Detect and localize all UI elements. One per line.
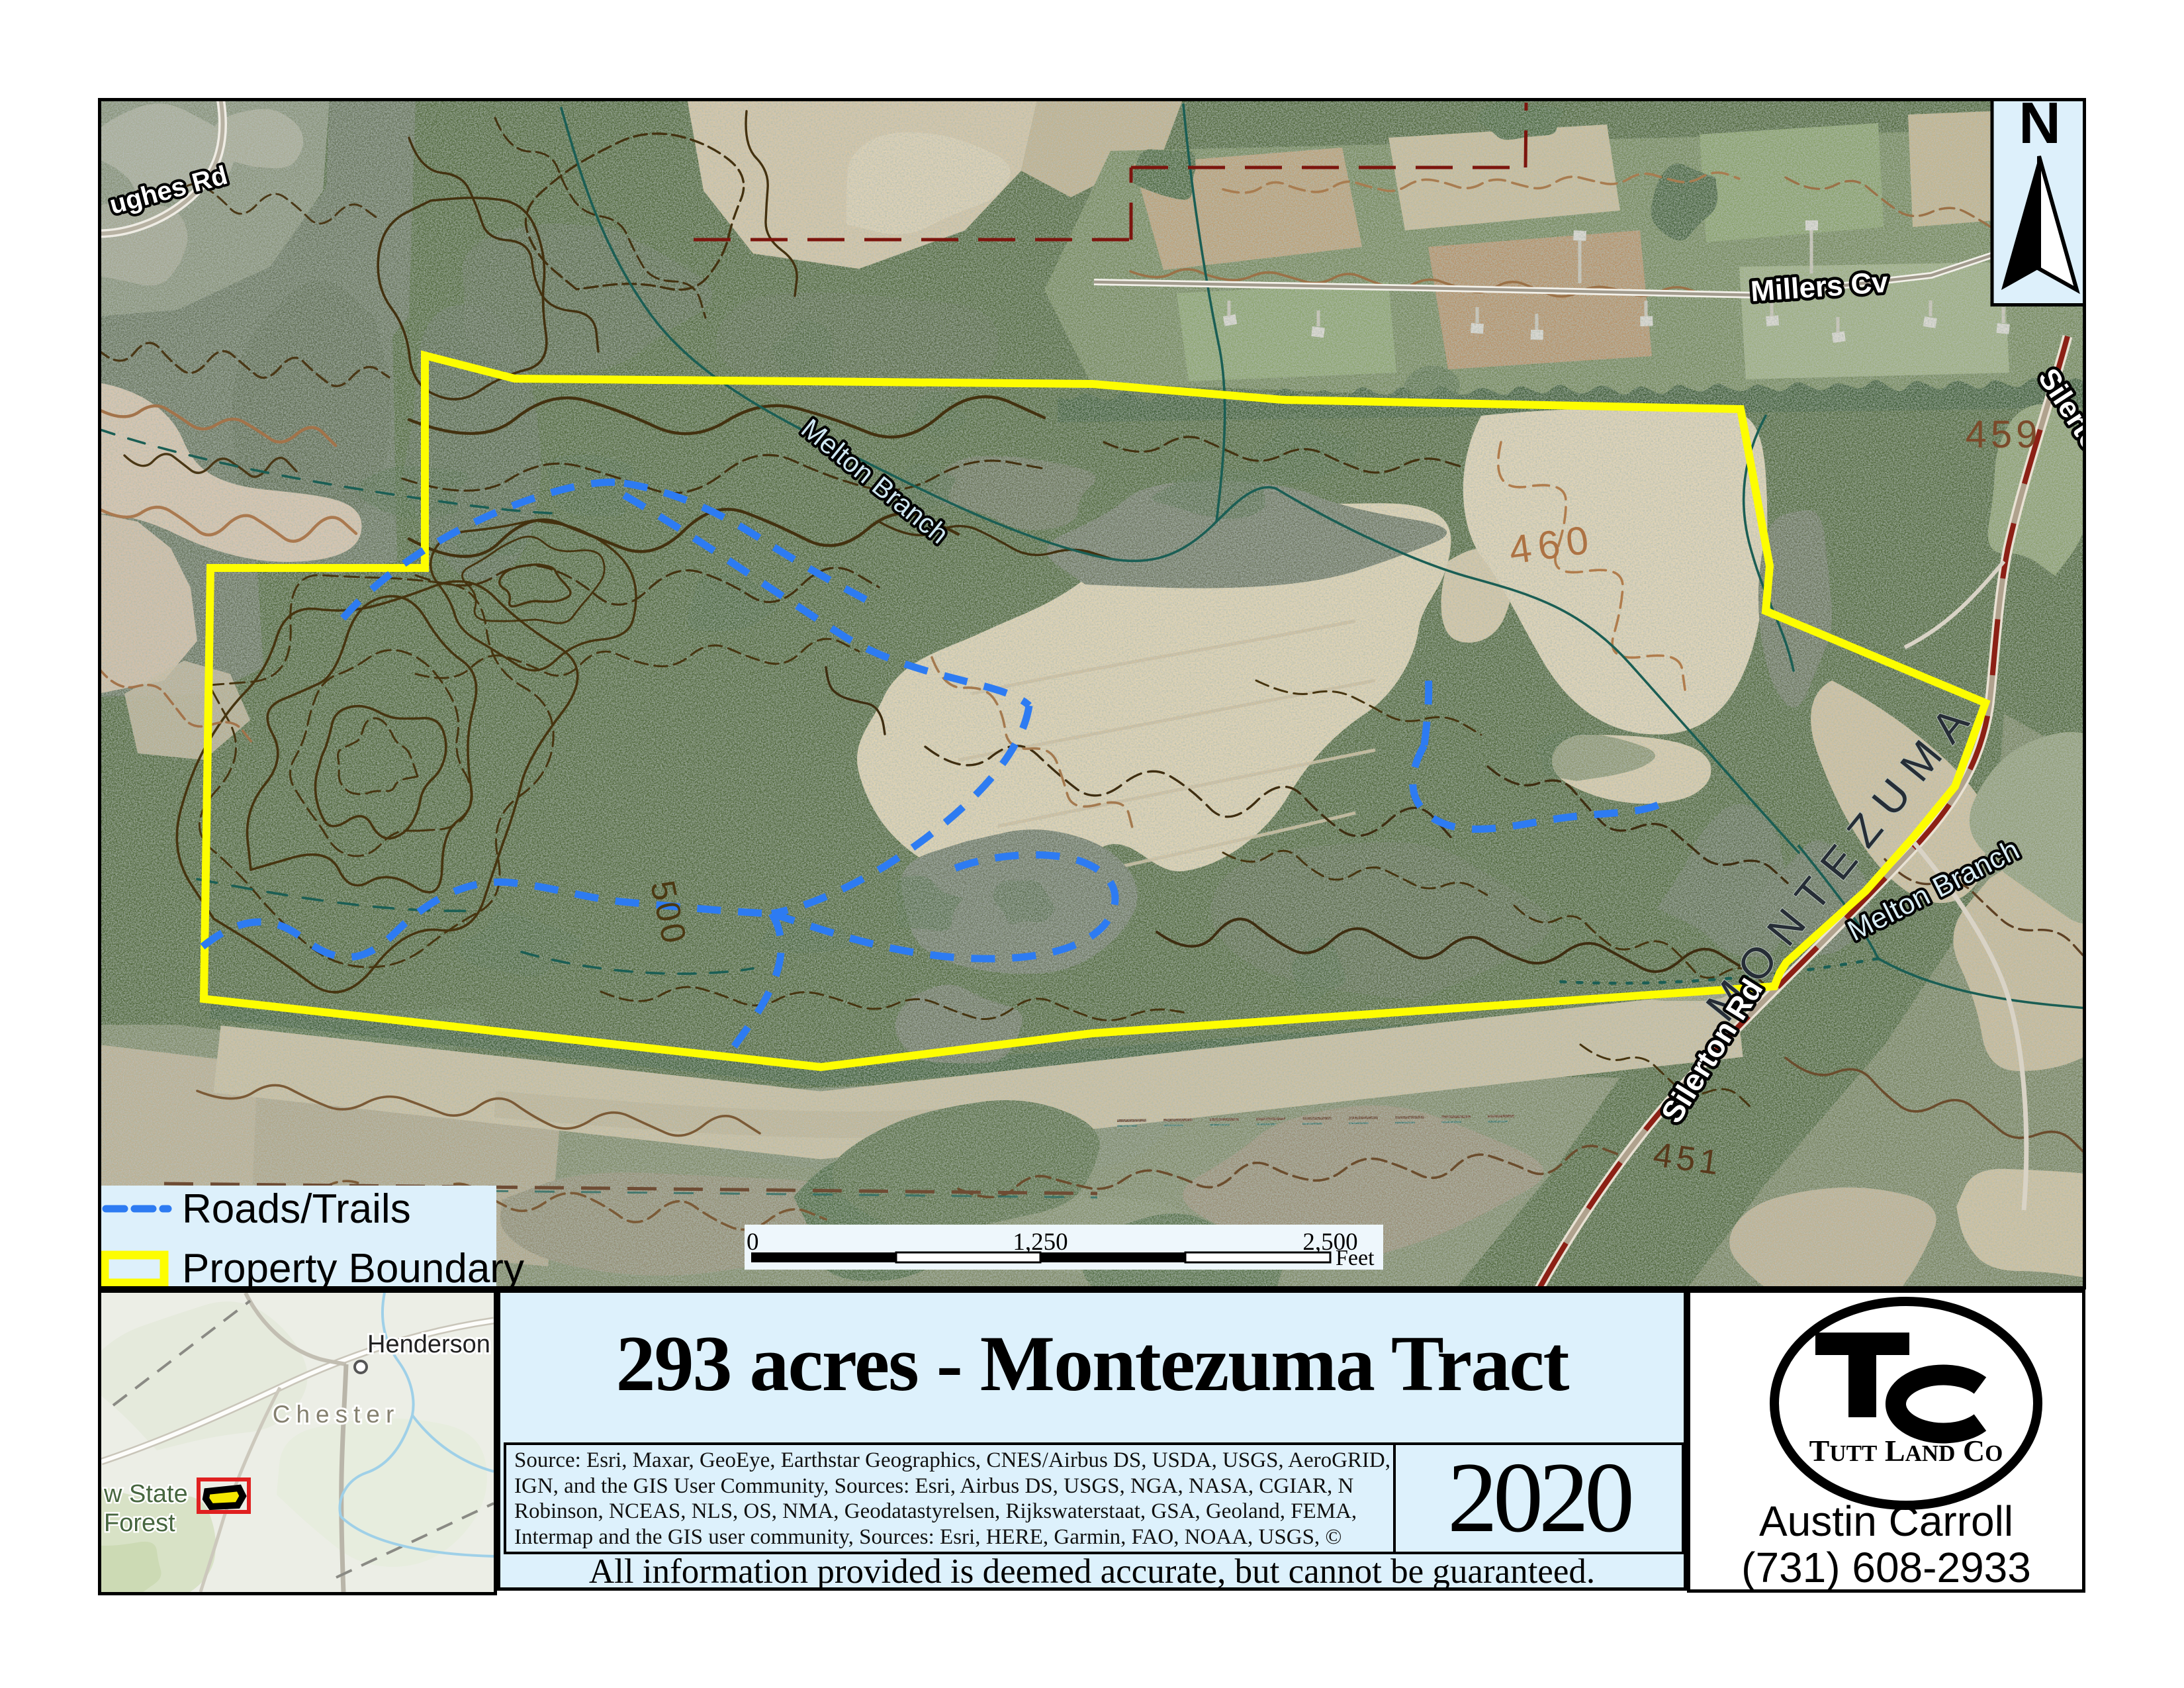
svg-text:0: 0 [747,1229,759,1256]
svg-text:w State: w State [103,1480,188,1508]
svg-text:Chester: Chester [273,1401,400,1428]
svg-text:Property Boundary: Property Boundary [182,1246,524,1289]
svg-text:Roads/Trails: Roads/Trails [182,1186,411,1232]
svg-text:Henderson: Henderson [367,1331,490,1358]
svg-text:459: 459 [1966,413,2042,456]
svg-text:N: N [2019,98,2061,156]
svg-text:Forest: Forest [104,1509,175,1537]
svg-text:Feet: Feet [1336,1246,1375,1270]
